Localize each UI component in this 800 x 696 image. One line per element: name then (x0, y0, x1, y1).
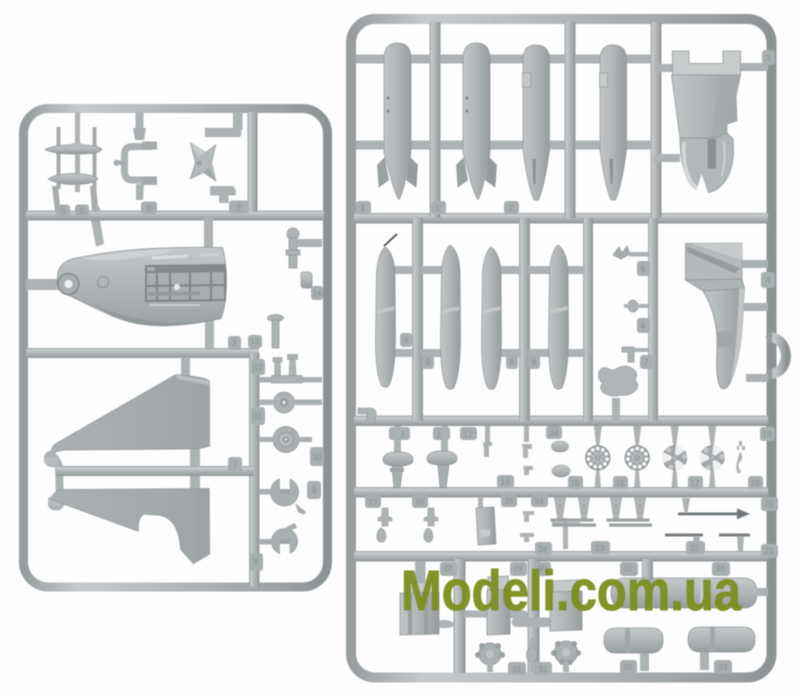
svg-text:9: 9 (404, 336, 409, 345)
svg-text:31: 31 (539, 665, 548, 674)
svg-text:31: 31 (513, 665, 522, 674)
svg-text:7: 7 (232, 460, 237, 470)
svg-text:11: 11 (254, 412, 263, 421)
svg-text:32: 32 (624, 663, 633, 672)
svg-text:8: 8 (253, 557, 258, 567)
svg-text:20: 20 (764, 499, 774, 509)
svg-text:15: 15 (571, 479, 580, 488)
svg-text:9: 9 (311, 485, 316, 495)
svg-text:18: 18 (763, 430, 772, 439)
svg-text:9: 9 (426, 358, 431, 367)
svg-text:Modeli.com.ua: Modeli.com.ua (401, 559, 742, 623)
svg-text:8: 8 (510, 358, 515, 367)
svg-text:23: 23 (596, 544, 605, 553)
svg-text:8: 8 (532, 358, 537, 367)
svg-text:5: 5 (79, 207, 84, 217)
svg-text:26: 26 (416, 498, 425, 507)
svg-text:5: 5 (641, 265, 646, 274)
svg-text:24: 24 (539, 545, 548, 554)
svg-text:17: 17 (691, 479, 700, 488)
svg-text:22: 22 (691, 544, 700, 553)
svg-text:27: 27 (369, 498, 378, 507)
svg-text:25: 25 (505, 497, 514, 506)
svg-text:14: 14 (313, 289, 322, 298)
svg-text:6: 6 (641, 322, 646, 331)
svg-text:12: 12 (254, 363, 263, 372)
svg-text:34: 34 (550, 429, 559, 438)
svg-text:7: 7 (644, 358, 649, 367)
svg-text:2: 2 (236, 203, 241, 213)
svg-text:1: 1 (360, 203, 365, 213)
svg-text:13: 13 (501, 478, 510, 487)
svg-text:19: 19 (751, 479, 760, 488)
svg-text:33: 33 (719, 663, 728, 672)
svg-text:24: 24 (535, 497, 544, 506)
svg-text:10: 10 (313, 453, 322, 462)
svg-text:3: 3 (766, 54, 771, 63)
svg-text:6: 6 (146, 204, 151, 214)
svg-text:5: 5 (60, 207, 65, 217)
svg-text:1: 1 (435, 203, 440, 213)
svg-text:13: 13 (251, 337, 260, 346)
svg-text:21: 21 (764, 546, 774, 556)
svg-text:4: 4 (766, 276, 771, 285)
svg-text:3: 3 (231, 338, 236, 348)
svg-text:12: 12 (464, 430, 473, 439)
svg-text:16: 16 (616, 479, 625, 488)
svg-text:2: 2 (508, 203, 513, 213)
